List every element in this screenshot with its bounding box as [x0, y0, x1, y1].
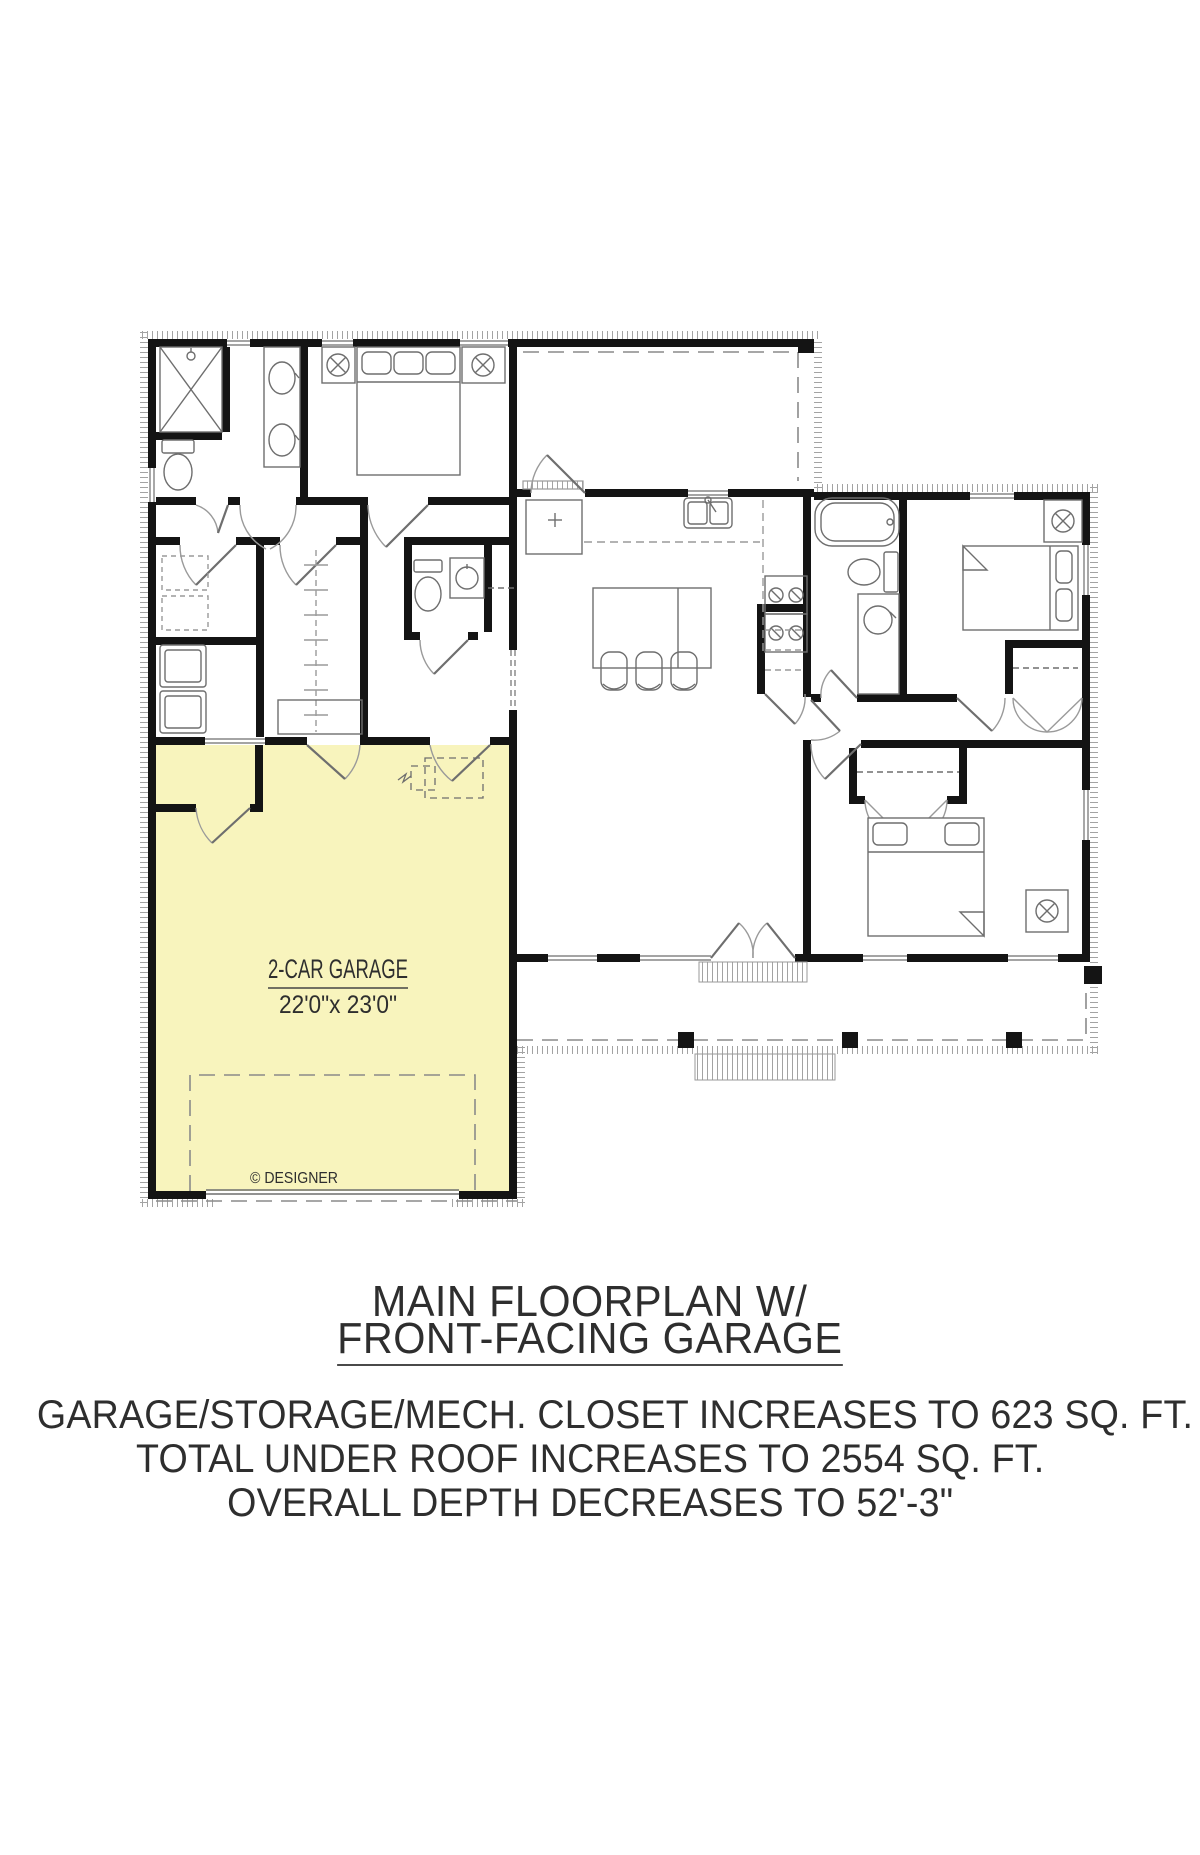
floorplan-drawing: 2-CAR GARAGE 22'0"x 23'0" © DESIGNER [0, 0, 1200, 1855]
toilet-bath2 [848, 552, 898, 592]
closet-double-doors-linen [1013, 698, 1082, 732]
shower [160, 347, 222, 432]
porch-column [1006, 1032, 1022, 1048]
note-line: TOTAL UNDER ROOF INCREASES TO 2554 SQ. F… [136, 1437, 1044, 1481]
front-steps [695, 1054, 835, 1080]
title-line2: FRONT-FACING GARAGE [337, 1320, 842, 1366]
note-line: OVERALL DEPTH DECREASES TO 52'-3" [227, 1481, 953, 1525]
vanity-bath2 [858, 594, 899, 694]
plan-notes: GARAGE/STORAGE/MECH. CLOSET INCREASES TO… [0, 1393, 1180, 1525]
kitchen-sink [684, 497, 732, 528]
roofline-dashes [517, 352, 1086, 1040]
refrigerator [526, 500, 582, 554]
stove [765, 576, 807, 652]
double-vanity [264, 347, 300, 467]
washer-dryer [160, 645, 206, 733]
note-line: GARAGE/STORAGE/MECH. CLOSET INCREASES TO… [37, 1393, 1193, 1437]
closet1-shelves [162, 556, 208, 630]
east-wing [815, 498, 1082, 936]
garage-dimensions: 22'0"x 23'0" [279, 991, 397, 1019]
ceiling-fan-icon [1036, 900, 1058, 922]
door-hall-bath [420, 640, 468, 674]
garage-label: 2-CAR GARAGE [268, 954, 408, 984]
door-bedroom1 [957, 698, 1005, 731]
door-master-toilet [196, 505, 228, 533]
toilet-master [162, 440, 194, 490]
hall-bath-master [414, 558, 517, 611]
walk-in-closet [304, 550, 328, 732]
window-top-wall [227, 339, 1014, 500]
door-steps [699, 962, 807, 982]
porch-corner-column [1084, 966, 1102, 984]
bathtub [815, 498, 899, 546]
window-left-wall [148, 468, 156, 502]
door-pantry [765, 694, 805, 724]
master-bed [357, 347, 460, 475]
plan-title: MAIN FLOORPLAN W/ FRONT-FACING GARAGE [0, 1283, 1180, 1366]
porch-column [842, 1032, 858, 1048]
porch-column [678, 1032, 694, 1048]
window-kitchen-sink [688, 491, 728, 495]
ceiling-fan-icon [1052, 510, 1074, 532]
floorplan-sheet: 2-CAR GARAGE 22'0"x 23'0" © DESIGNER MAI… [0, 0, 1200, 1855]
bedroom2-bed [868, 818, 984, 936]
kitchen-island [593, 588, 711, 690]
mudroom-bench [278, 700, 362, 734]
ceiling-fan-icon [472, 354, 494, 376]
front-porch [678, 962, 1102, 1080]
french-doors-rear [711, 923, 795, 958]
ceiling-fan-icon [327, 354, 349, 376]
door-bath2 [821, 670, 857, 698]
door-hallway-spine [811, 700, 840, 740]
bedroom1-bed [963, 546, 1078, 630]
copyright-text: © DESIGNER [250, 1170, 338, 1187]
